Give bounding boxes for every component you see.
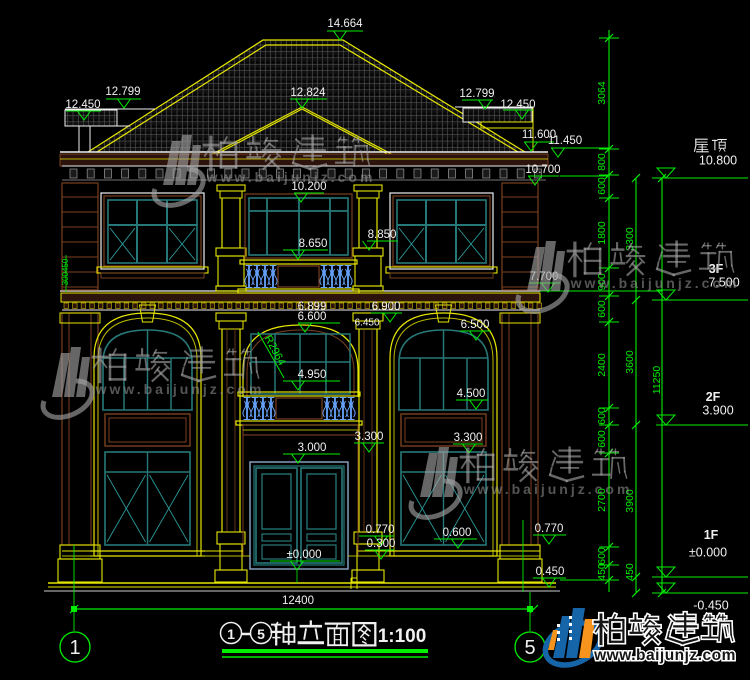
svg-text:14.664: 14.664 xyxy=(327,18,363,30)
svg-text:450: 450 xyxy=(624,563,636,581)
svg-text:6.450: 6.450 xyxy=(354,318,379,329)
svg-text:6.500: 6.500 xyxy=(461,319,490,331)
svg-text:4.950: 4.950 xyxy=(298,369,327,381)
svg-text:1:100: 1:100 xyxy=(378,626,427,647)
svg-text:600: 600 xyxy=(596,430,608,448)
svg-text:0.600: 0.600 xyxy=(443,527,472,539)
svg-text:10.700: 10.700 xyxy=(525,164,560,176)
svg-text:1: 1 xyxy=(227,626,235,642)
svg-text:www.baijunjz.com: www.baijunjz.com xyxy=(593,647,736,664)
svg-text:www.baijunjz.com: www.baijunjz.com xyxy=(95,381,265,397)
svg-text:1800: 1800 xyxy=(596,221,608,245)
svg-text:3.300: 3.300 xyxy=(454,432,483,444)
svg-text:5: 5 xyxy=(524,637,535,659)
svg-text:2400: 2400 xyxy=(596,353,608,377)
svg-text:0.770: 0.770 xyxy=(366,524,395,536)
svg-text:4.500: 4.500 xyxy=(457,388,486,400)
svg-text:5: 5 xyxy=(257,626,265,642)
svg-text:12.799: 12.799 xyxy=(459,88,494,100)
svg-text:www.baijunjz.com: www.baijunjz.com xyxy=(206,169,376,185)
svg-text:12.824: 12.824 xyxy=(290,87,326,99)
svg-text:3.900: 3.900 xyxy=(702,404,733,418)
svg-text:±0.000: ±0.000 xyxy=(286,549,321,561)
svg-text:2F: 2F xyxy=(706,390,721,404)
svg-text:3600: 3600 xyxy=(624,350,636,374)
svg-text:600: 600 xyxy=(596,547,608,565)
svg-text:8.850: 8.850 xyxy=(368,229,397,241)
svg-text:12400: 12400 xyxy=(282,595,314,607)
svg-text:0.450: 0.450 xyxy=(536,566,565,578)
svg-text:800: 800 xyxy=(596,153,608,171)
svg-text:3.000: 3.000 xyxy=(298,442,327,454)
svg-text:11250: 11250 xyxy=(651,366,663,395)
svg-text:www.baijunjz.com: www.baijunjz.com xyxy=(463,481,633,497)
svg-text:600: 600 xyxy=(596,407,608,425)
svg-text:3064: 3064 xyxy=(596,81,608,105)
svg-text:0.770: 0.770 xyxy=(535,523,564,535)
svg-text:10.800: 10.800 xyxy=(699,154,737,168)
svg-text:12.450: 12.450 xyxy=(500,99,535,111)
svg-text:450: 450 xyxy=(596,563,608,581)
svg-text:600: 600 xyxy=(596,300,608,318)
svg-text:1F: 1F xyxy=(704,528,719,542)
svg-text:±0.000: ±0.000 xyxy=(689,546,727,560)
svg-text:www.baijunjz.com: www.baijunjz.com xyxy=(570,275,740,291)
svg-text:300450: 300450 xyxy=(61,258,70,285)
svg-text:8.650: 8.650 xyxy=(299,238,328,250)
svg-text:12.799: 12.799 xyxy=(105,86,140,98)
svg-text:-0.450: -0.450 xyxy=(693,599,728,613)
svg-text:12.450: 12.450 xyxy=(65,99,100,111)
svg-text:1: 1 xyxy=(69,637,80,659)
svg-text:3.300: 3.300 xyxy=(355,431,384,443)
svg-text:0.300: 0.300 xyxy=(367,538,396,550)
svg-text:6.900: 6.900 xyxy=(372,301,401,313)
svg-text:11.450: 11.450 xyxy=(548,135,582,147)
svg-text:6.600: 6.600 xyxy=(298,311,327,323)
svg-text:600: 600 xyxy=(596,177,608,195)
